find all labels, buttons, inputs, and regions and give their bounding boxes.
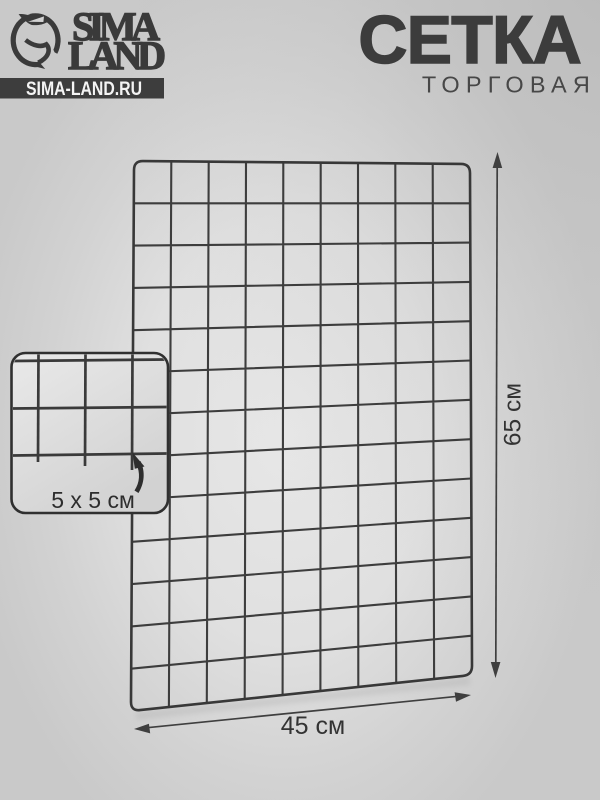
svg-text:5 x 5 см: 5 x 5 см [51, 487, 135, 513]
svg-text:СЕТКА: СЕТКА [358, 2, 581, 78]
svg-text:ТОРГОВАЯ: ТОРГОВАЯ [422, 72, 596, 98]
svg-text:45 см: 45 см [281, 712, 345, 740]
svg-text:LAND: LAND [68, 33, 166, 78]
svg-text:65 см: 65 см [500, 383, 527, 446]
svg-text:SIMA-LAND.RU: SIMA-LAND.RU [26, 78, 142, 100]
